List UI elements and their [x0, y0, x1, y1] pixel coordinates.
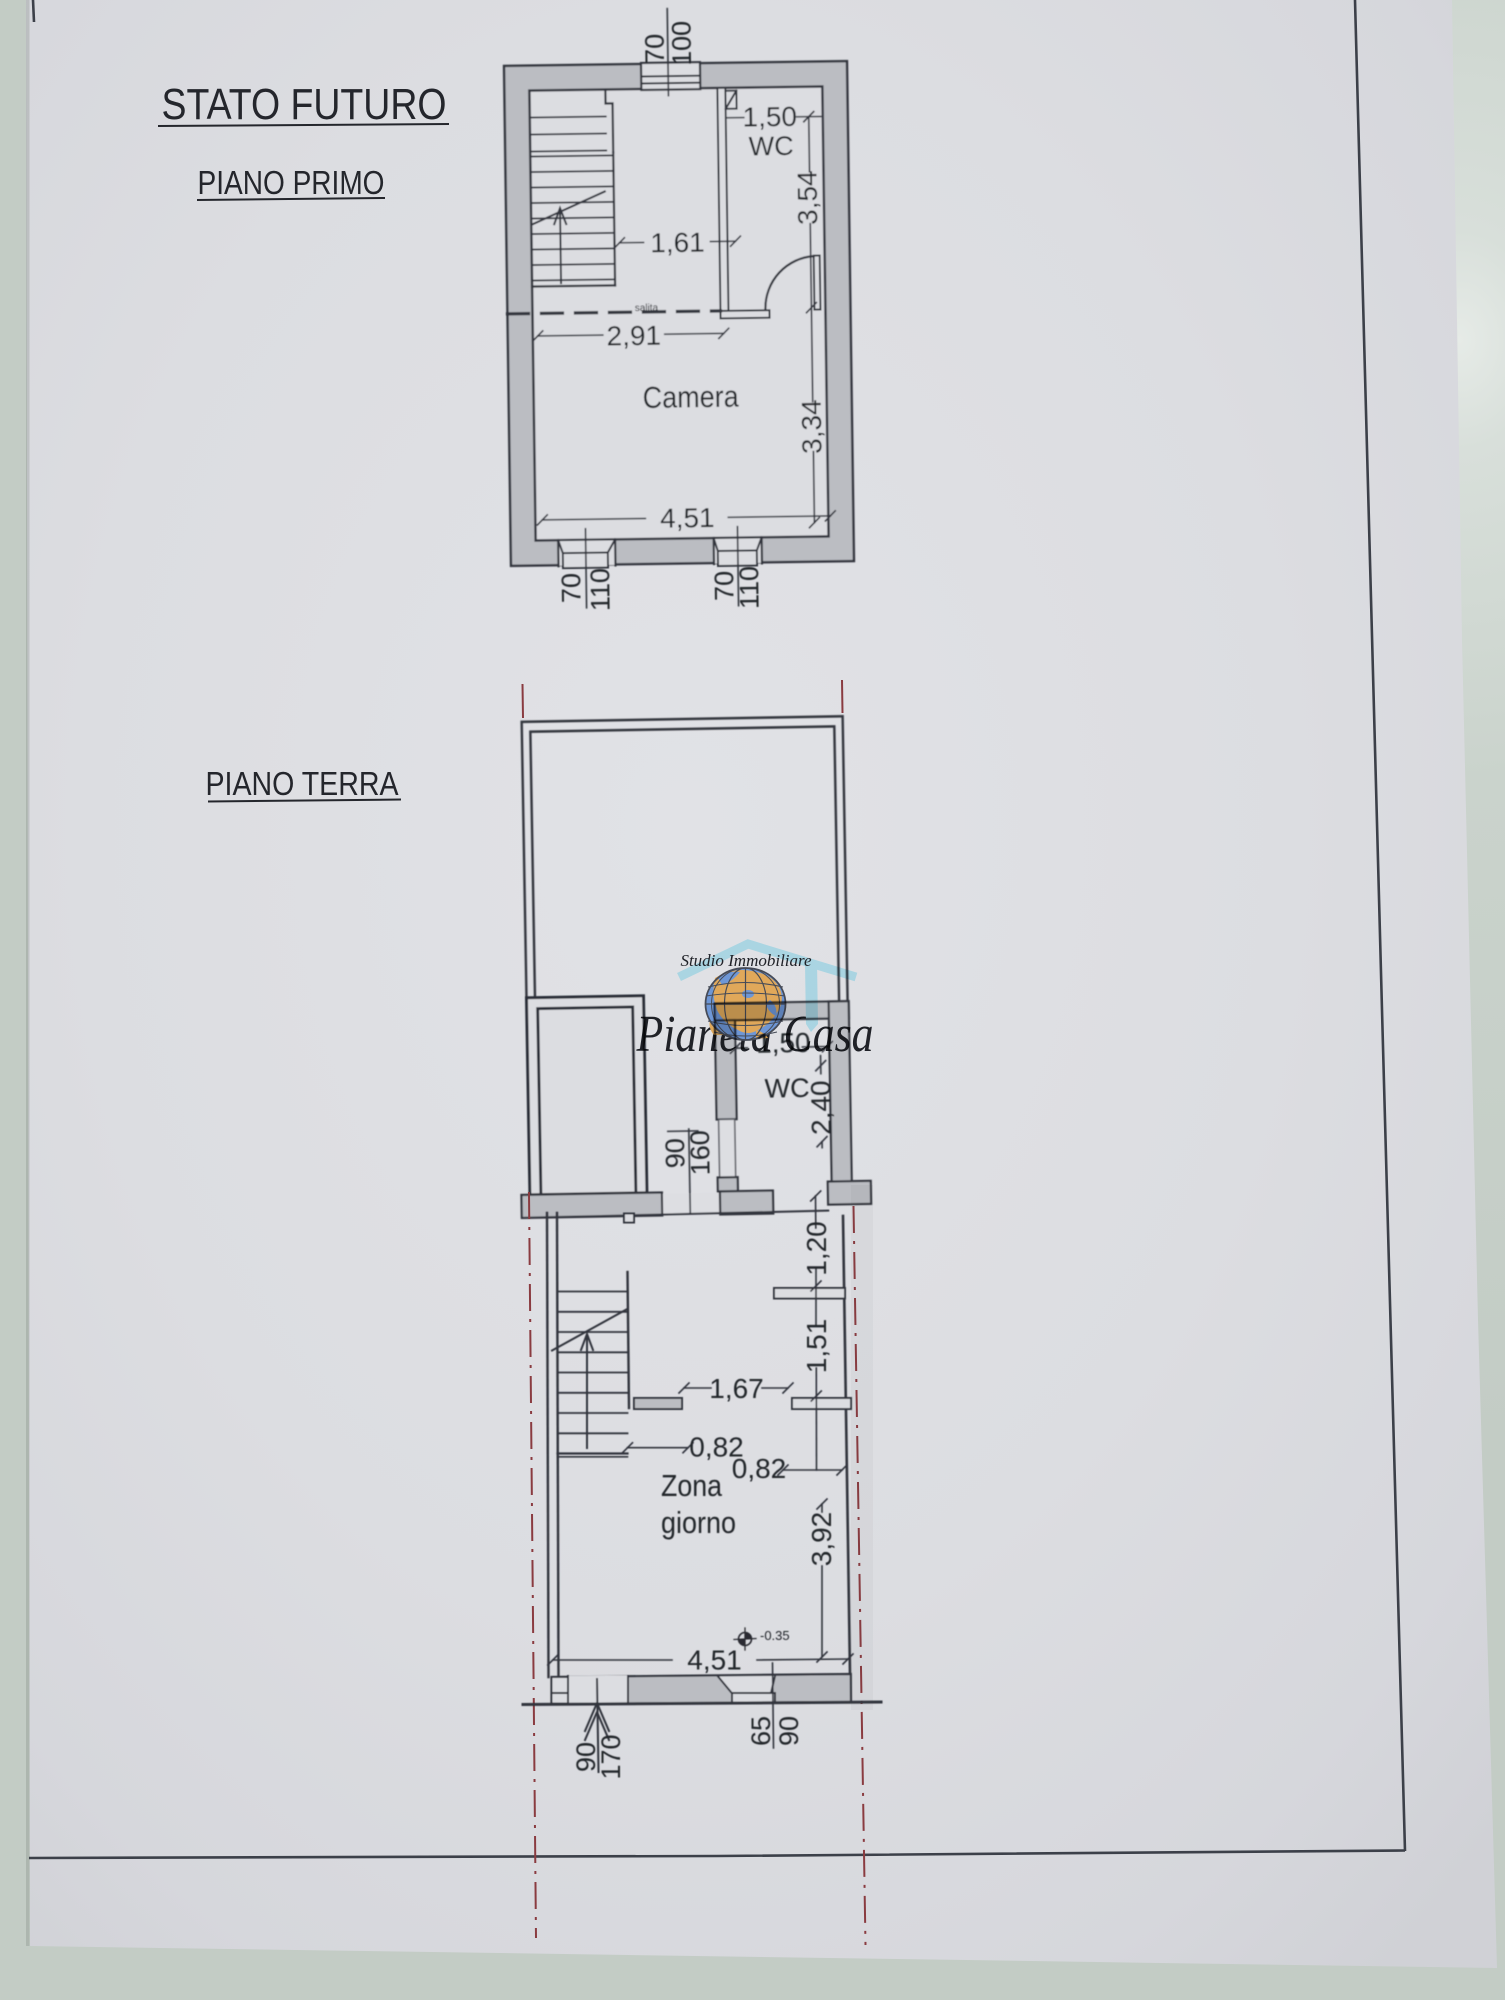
svg-text:STATO FUTURO: STATO FUTURO: [162, 80, 447, 129]
svg-text:110: 110: [585, 568, 616, 611]
svg-text:90: 90: [774, 1716, 804, 1746]
svg-text:1,67: 1,67: [709, 1373, 764, 1404]
svg-text:1,50: 1,50: [742, 101, 797, 133]
svg-text:70: 70: [556, 573, 586, 603]
svg-text:PIANO PRIMO: PIANO PRIMO: [198, 164, 385, 201]
svg-text:100: 100: [666, 21, 697, 66]
svg-text:1,20: 1,20: [801, 1221, 832, 1276]
svg-text:3,54: 3,54: [792, 170, 824, 225]
svg-text:0,82: 0,82: [732, 1453, 787, 1484]
svg-text:Camera: Camera: [642, 379, 739, 415]
svg-text:110: 110: [734, 566, 765, 609]
svg-text:WC: WC: [764, 1073, 810, 1104]
svg-text:1,61: 1,61: [650, 227, 705, 259]
svg-text:Zona: Zona: [661, 1468, 723, 1503]
svg-text:4,51: 4,51: [687, 1645, 742, 1676]
svg-text:PIANO TERRA: PIANO TERRA: [206, 765, 399, 802]
svg-text:160: 160: [685, 1130, 716, 1176]
svg-text:3,34: 3,34: [796, 399, 828, 454]
svg-text:170: 170: [596, 1734, 626, 1779]
svg-text:salita: salita: [635, 303, 659, 314]
svg-text:giorno: giorno: [661, 1505, 736, 1540]
svg-text:-0.35: -0.35: [760, 1628, 790, 1643]
svg-text:WC: WC: [748, 131, 793, 162]
svg-text:65: 65: [746, 1716, 776, 1746]
svg-text:70: 70: [640, 34, 670, 64]
svg-text:4,51: 4,51: [660, 502, 715, 534]
svg-text:3,92: 3,92: [806, 1512, 837, 1567]
svg-text:2,91: 2,91: [606, 320, 661, 352]
svg-text:1,51: 1,51: [801, 1319, 832, 1374]
svg-text:2,40: 2,40: [805, 1080, 837, 1135]
